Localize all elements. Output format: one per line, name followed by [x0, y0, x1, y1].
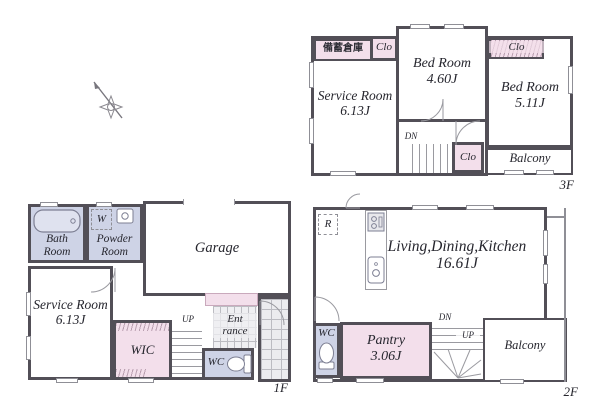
sink-icon: [116, 208, 134, 224]
closet-hanger-hatch: [116, 323, 169, 331]
balcony-side-wall: [547, 216, 566, 218]
up-label-1f: UP: [176, 314, 200, 324]
door-arc: [314, 296, 340, 322]
bedroom-b-label: Bed Room 5.11J: [487, 80, 573, 111]
door-arc: [345, 193, 361, 209]
closet-hanger-hatch: [116, 369, 146, 377]
balcony-3f-label: Balcony: [487, 151, 573, 165]
floor2-label: 2F: [548, 385, 578, 400]
window: [543, 230, 548, 256]
stairs-2f-winder: [432, 348, 483, 380]
closet-stairs-label: Clo: [452, 151, 484, 163]
window: [504, 170, 524, 175]
window: [500, 379, 524, 384]
garage-label: Garage: [143, 240, 291, 256]
window: [412, 205, 438, 210]
up-label-2f: UP: [456, 330, 480, 340]
bath-label: Bath Room: [28, 233, 86, 259]
washer-label: W: [91, 213, 112, 225]
entrance-label: Ent rance: [213, 313, 257, 338]
window: [128, 378, 154, 383]
window: [26, 292, 31, 316]
window: [466, 205, 494, 210]
powder-label: Powder Room: [86, 233, 143, 259]
door-arc: [420, 98, 444, 122]
window: [26, 336, 31, 360]
floor3-label: 3F: [544, 178, 574, 193]
storage-label: 備蓄倉庫: [314, 43, 372, 54]
floor1-label: 1F: [258, 381, 288, 396]
window: [536, 170, 554, 175]
window: [309, 62, 314, 88]
ldk-label: Living,Dining,Kitchen 16.61J: [362, 238, 552, 273]
balcony-2f-label: Balcony: [483, 338, 567, 352]
window: [444, 24, 464, 29]
wc-2f-label: WC: [313, 327, 340, 339]
stairs-3f: [406, 144, 448, 173]
service-3f-label: Service Room 6.13J: [317, 88, 393, 118]
window: [543, 264, 548, 284]
dn-label-2f: DN: [432, 312, 458, 322]
floorplan-canvas: 備蓄倉庫 Clo Clo Bed Room 4.60J Bed Room 5.1…: [0, 0, 600, 411]
window: [317, 378, 333, 383]
window: [356, 378, 384, 383]
service-1f-label: Service Room 6.13J: [33, 297, 108, 327]
fridge-label: R: [318, 218, 338, 230]
entrance-closet-strip: [205, 293, 258, 306]
compass-icon: [84, 76, 132, 124]
bathtub-icon: [33, 209, 81, 233]
bedroom-a-label: Bed Room 4.60J: [398, 56, 486, 87]
garage-door-opening: [183, 199, 235, 205]
door-arc: [259, 300, 285, 326]
wall-segment: [172, 377, 202, 380]
toilet-icon: [226, 352, 252, 376]
closet-right-label: Clo: [489, 41, 544, 53]
window: [309, 118, 314, 144]
wic-label: WIC: [113, 343, 172, 358]
window: [330, 171, 356, 176]
balcony-side-wall: [564, 208, 566, 382]
window: [568, 66, 573, 94]
toilet-icon: [317, 341, 336, 371]
dn-label-3f: DN: [398, 131, 424, 141]
window: [56, 378, 78, 383]
stairs-1f: [172, 325, 202, 377]
window: [410, 24, 430, 29]
door-arc: [90, 267, 116, 293]
window: [96, 202, 112, 207]
door-arc: [455, 120, 481, 146]
stove-icon: [367, 212, 385, 232]
window: [40, 202, 58, 207]
closet-left-label: Clo: [370, 41, 398, 53]
pantry-label: Pantry 3.06J: [340, 333, 432, 364]
